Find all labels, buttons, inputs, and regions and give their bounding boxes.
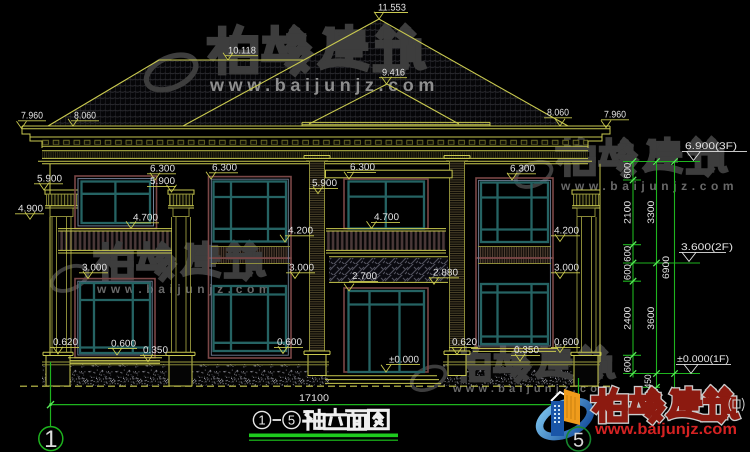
svg-text:0.600: 0.600 <box>554 337 579 348</box>
svg-text:5.900: 5.900 <box>37 174 62 185</box>
svg-text:4.200: 4.200 <box>288 226 313 237</box>
svg-text:10.118: 10.118 <box>228 46 256 57</box>
svg-text:4.900: 4.900 <box>18 204 43 215</box>
svg-text:2400: 2400 <box>622 307 633 330</box>
svg-text:6.300: 6.300 <box>350 162 375 173</box>
svg-text:5: 5 <box>573 430 584 452</box>
svg-text:600: 600 <box>622 163 633 179</box>
svg-text:3600: 3600 <box>645 307 656 330</box>
svg-text:0.350: 0.350 <box>514 345 539 356</box>
svg-text:5: 5 <box>288 413 295 428</box>
svg-text:3300: 3300 <box>645 201 656 224</box>
svg-text:4.700: 4.700 <box>133 213 158 224</box>
svg-text:0.600: 0.600 <box>111 338 136 349</box>
svg-text:5.900: 5.900 <box>312 178 337 189</box>
svg-text:3.000: 3.000 <box>82 263 107 274</box>
svg-text:±0.000: ±0.000 <box>389 354 419 365</box>
svg-text:4.200: 4.200 <box>554 226 579 237</box>
svg-text:600: 600 <box>622 246 633 262</box>
svg-text:±0.000(1F): ±0.000(1F) <box>677 354 729 365</box>
svg-text:www.baijunjz.com: www.baijunjz.com <box>560 179 738 193</box>
svg-text:www.baijunjz.com: www.baijunjz.com <box>594 421 737 438</box>
svg-text:600: 600 <box>622 356 633 372</box>
svg-text:4.700: 4.700 <box>374 212 399 223</box>
svg-text:17100: 17100 <box>299 393 329 404</box>
svg-text:2.880: 2.880 <box>433 268 458 279</box>
svg-text:2100: 2100 <box>622 201 633 224</box>
svg-text:0.600: 0.600 <box>277 337 302 348</box>
svg-text:8.060: 8.060 <box>547 108 569 119</box>
svg-text:7.960: 7.960 <box>21 111 43 122</box>
svg-text:3.000: 3.000 <box>289 263 314 274</box>
svg-text:7.960: 7.960 <box>604 110 626 121</box>
svg-text:3.000: 3.000 <box>554 263 579 274</box>
svg-text:1: 1 <box>258 413 265 428</box>
svg-text:600: 600 <box>622 264 633 280</box>
svg-text:6.300: 6.300 <box>150 164 175 175</box>
svg-text:9.416: 9.416 <box>382 68 405 79</box>
svg-text:6900: 6900 <box>660 256 671 279</box>
svg-text:3.600(2F): 3.600(2F) <box>681 242 733 253</box>
svg-text:6.300: 6.300 <box>510 164 535 175</box>
svg-text:1: 1 <box>44 426 57 452</box>
svg-text:5.900: 5.900 <box>150 176 175 187</box>
svg-text:11.553: 11.553 <box>378 2 406 13</box>
svg-text:0.620: 0.620 <box>53 337 78 348</box>
svg-text:6.900(3F): 6.900(3F) <box>685 141 737 152</box>
svg-text:0.620: 0.620 <box>452 337 477 348</box>
svg-text:2.700: 2.700 <box>352 271 377 282</box>
svg-text:0.350: 0.350 <box>143 345 168 356</box>
